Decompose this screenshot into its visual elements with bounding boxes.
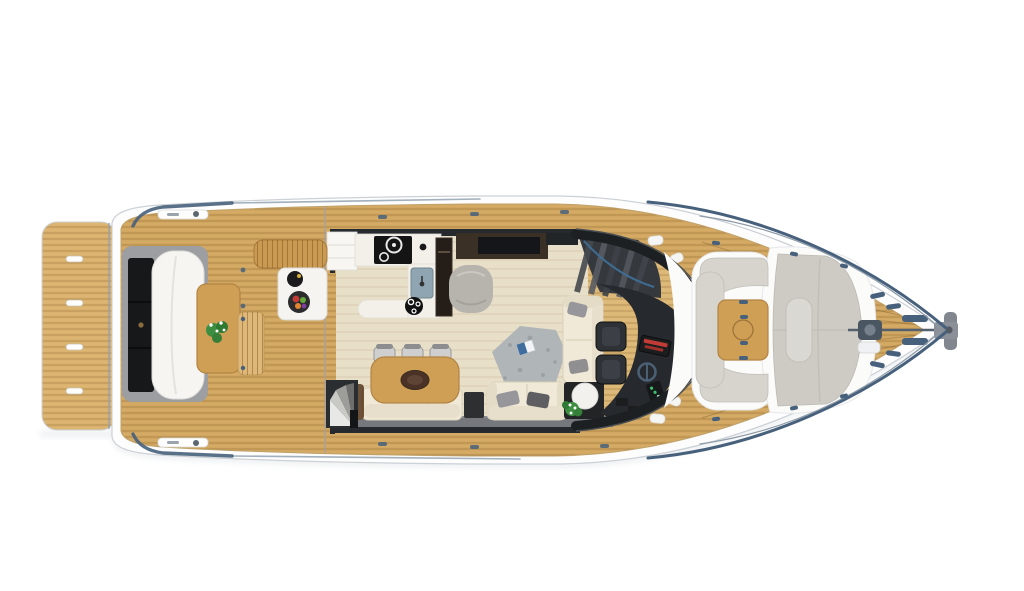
swim-platform [42, 222, 116, 430]
aft-table [197, 284, 240, 373]
helm-seat [596, 322, 626, 351]
lower-deck-spiral-stairs [326, 380, 358, 428]
corner-table [562, 382, 604, 419]
dining-table [371, 357, 459, 403]
galley-counter-peninsula [358, 300, 410, 318]
cooktop [374, 236, 412, 264]
yacht-render [0, 0, 1024, 591]
loveseat [487, 382, 567, 420]
aft-bench-cushion [152, 251, 204, 399]
gray-pouf [449, 265, 493, 313]
round-hob [405, 297, 423, 315]
sun-pad-backrest [786, 298, 812, 362]
yacht-deck-plan-canvas [0, 0, 1024, 591]
fruit-plate [288, 291, 310, 313]
counter-fitting [420, 244, 427, 251]
bow-table [718, 300, 768, 360]
dark-side-table [464, 392, 484, 418]
aft-bench-seat [122, 246, 208, 402]
fridge-column [436, 238, 452, 316]
helm-seat [596, 355, 626, 384]
wicker-lounger [254, 240, 327, 268]
transom-bench [238, 312, 264, 375]
cabin-wall-bottom [332, 426, 580, 433]
black-bowl [287, 271, 303, 287]
galley-cabinet [327, 232, 357, 270]
serving-table [278, 268, 327, 320]
